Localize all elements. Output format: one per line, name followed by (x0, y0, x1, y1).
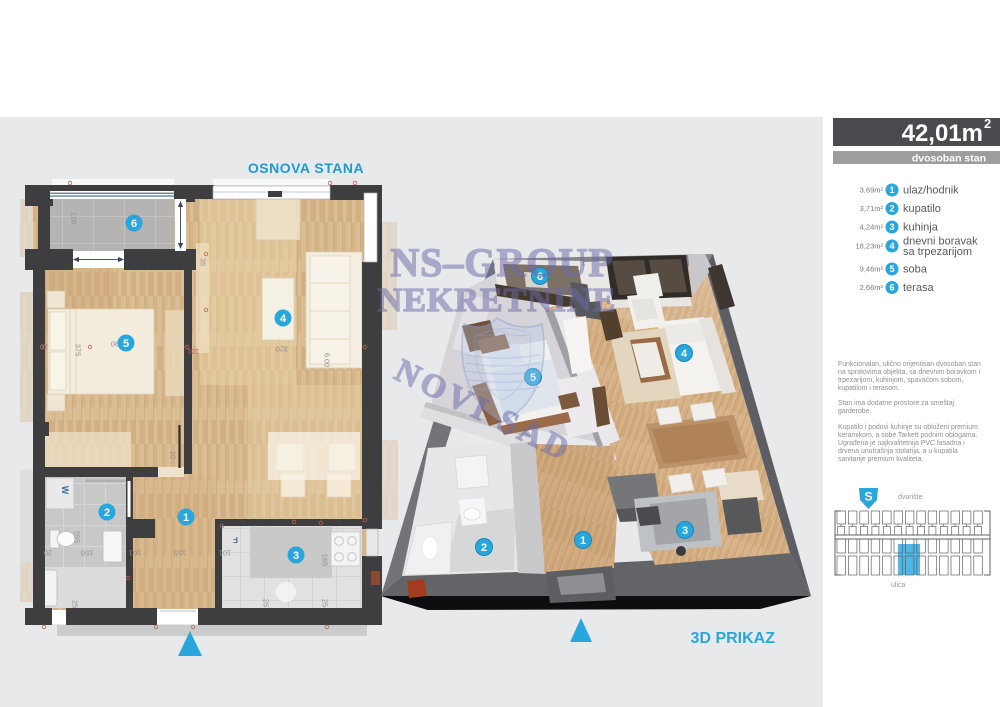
svg-text:soba: soba (903, 264, 928, 276)
svg-text:3,69m²: 3,69m² (860, 186, 884, 195)
svg-text:ulica: ulica (891, 582, 906, 589)
svg-text:2: 2 (984, 116, 991, 131)
svg-text:375: 375 (74, 344, 83, 357)
svg-text:2,66m²: 2,66m² (860, 283, 884, 292)
svg-text:101: 101 (219, 549, 232, 558)
svg-text:35: 35 (199, 258, 208, 266)
svg-text:S: S (864, 490, 872, 504)
svg-text:4: 4 (681, 348, 688, 360)
svg-text:150: 150 (81, 549, 94, 558)
svg-text:1: 1 (889, 185, 894, 195)
svg-text:terasa: terasa (903, 282, 934, 294)
svg-text:1: 1 (580, 535, 586, 547)
svg-text:NEKRETNINE: NEKRETNINE (378, 282, 617, 319)
svg-text:6: 6 (131, 218, 137, 230)
svg-text:F: F (233, 535, 238, 544)
svg-text:9,46m²: 9,46m² (860, 265, 884, 274)
svg-text:101: 101 (129, 549, 142, 558)
svg-text:42,01m: 42,01m (902, 120, 983, 147)
svg-text:255: 255 (73, 531, 82, 544)
svg-text:dvorište: dvorište (898, 494, 923, 501)
svg-text:3: 3 (293, 550, 299, 562)
svg-text:6.00: 6.00 (323, 353, 332, 368)
svg-text:20: 20 (40, 343, 48, 352)
svg-text:kuhinja: kuhinja (903, 222, 939, 234)
svg-text:3: 3 (889, 222, 894, 232)
svg-text:W: W (60, 486, 70, 495)
svg-text:101: 101 (187, 347, 199, 354)
svg-text:165: 165 (321, 554, 330, 567)
svg-text:25: 25 (71, 600, 80, 608)
svg-text:4,24m²: 4,24m² (860, 223, 884, 232)
svg-text:2: 2 (481, 542, 487, 554)
svg-text:3,71m²: 3,71m² (860, 204, 884, 213)
svg-text:120: 120 (70, 212, 79, 225)
svg-text:4: 4 (889, 241, 894, 251)
svg-text:sa trpezarijom: sa trpezarijom (903, 246, 972, 258)
svg-text:ulaz/hodnik: ulaz/hodnik (903, 185, 959, 197)
svg-text:3: 3 (682, 525, 688, 537)
svg-text:18,23m²: 18,23m² (855, 242, 883, 251)
svg-text:3D PRIKAZ: 3D PRIKAZ (691, 630, 776, 647)
svg-text:155: 155 (174, 549, 187, 558)
svg-text:dvosoban stan: dvosoban stan (912, 153, 986, 165)
svg-text:kupatilo: kupatilo (903, 203, 941, 215)
svg-text:4: 4 (280, 313, 287, 325)
svg-text:20: 20 (44, 549, 52, 558)
svg-text:NS–GROUP: NS–GROUP (390, 240, 614, 285)
svg-text:5: 5 (123, 338, 129, 350)
svg-text:2: 2 (104, 507, 110, 519)
svg-text:10: 10 (169, 451, 178, 459)
svg-text:6: 6 (889, 283, 894, 293)
svg-text:5: 5 (889, 264, 894, 274)
svg-text:1: 1 (183, 512, 189, 524)
svg-text:320: 320 (276, 345, 289, 354)
svg-text:OSNOVA STANA: OSNOVA STANA (248, 160, 364, 176)
svg-text:2: 2 (889, 204, 894, 214)
svg-text:25: 25 (262, 599, 271, 607)
svg-text:25: 25 (321, 599, 330, 607)
